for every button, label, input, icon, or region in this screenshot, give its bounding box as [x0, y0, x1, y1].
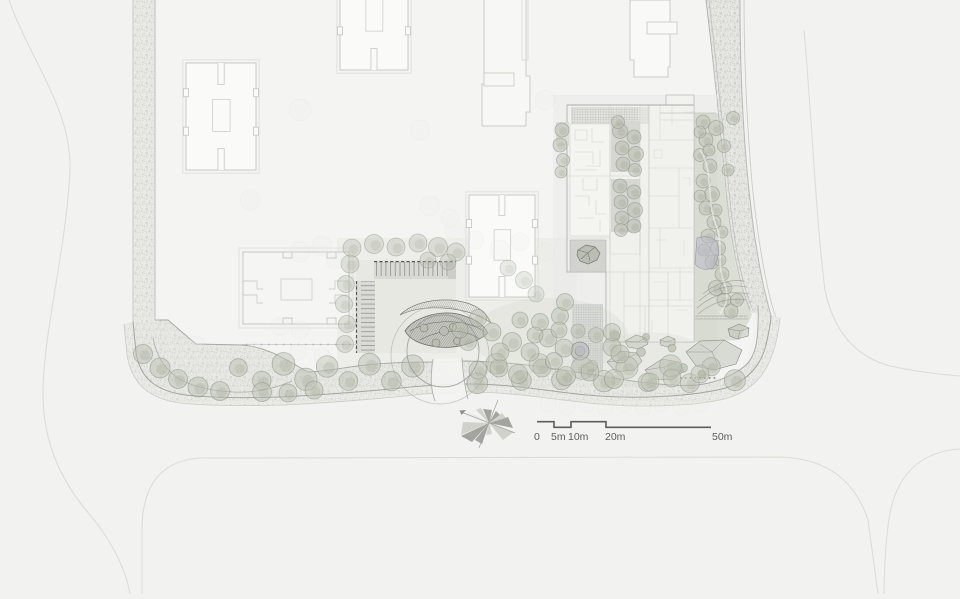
svg-text:20m: 20m — [605, 431, 626, 443]
svg-text:0: 0 — [534, 431, 540, 443]
svg-text:50m: 50m — [712, 431, 733, 443]
svg-text:5m: 5m — [551, 431, 566, 443]
svg-text:10m: 10m — [568, 431, 589, 443]
